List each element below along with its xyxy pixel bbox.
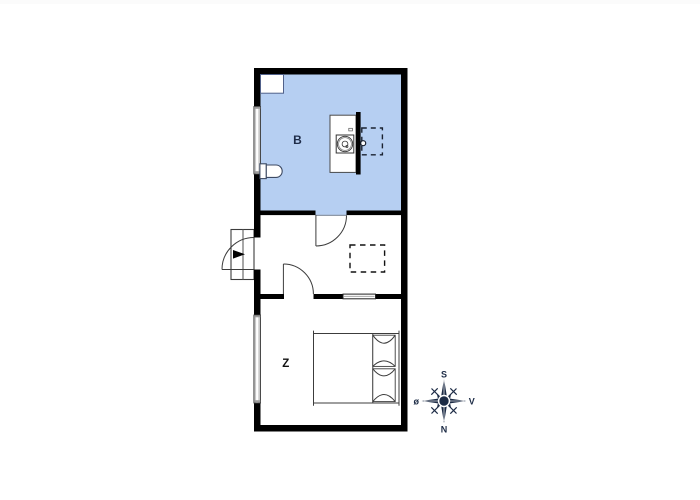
svg-text:B: B bbox=[293, 133, 302, 147]
svg-text:Z: Z bbox=[282, 358, 289, 370]
svg-text:S: S bbox=[441, 370, 447, 380]
svg-text:V: V bbox=[469, 397, 475, 407]
svg-text:N: N bbox=[441, 425, 448, 435]
svg-text:ø: ø bbox=[413, 396, 419, 406]
